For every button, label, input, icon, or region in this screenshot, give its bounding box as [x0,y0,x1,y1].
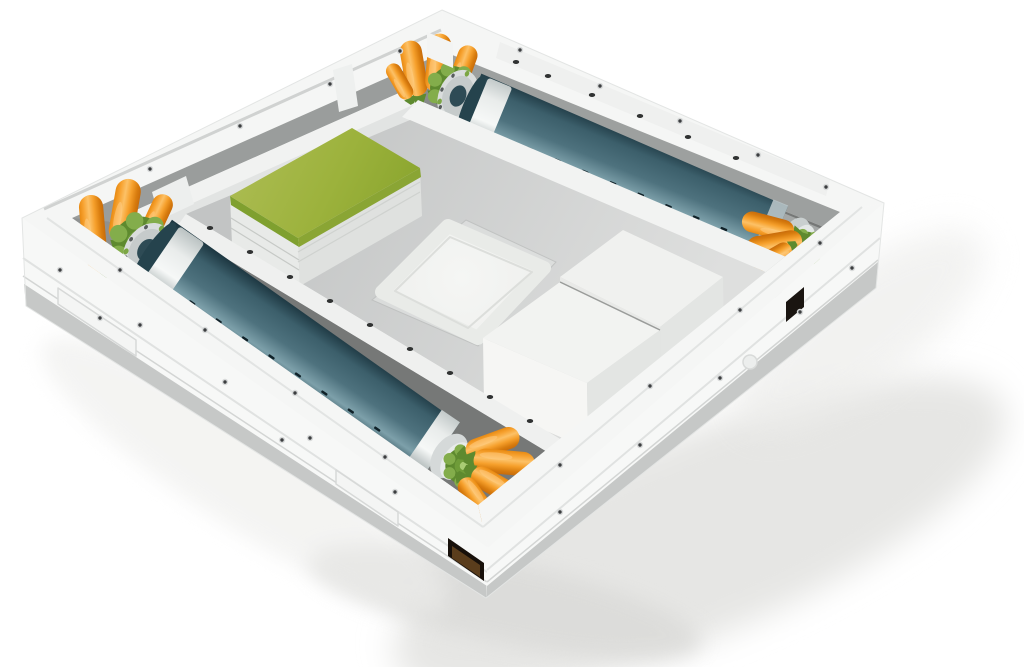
screw [737,307,743,313]
bar-hole [447,371,453,375]
bar-hole [527,419,533,423]
bar-hole [487,395,493,399]
screw [392,489,398,495]
screw [597,83,603,89]
bar-hole [367,323,373,327]
screw [637,442,643,448]
screw [202,327,208,333]
screw [279,437,285,443]
mount-hole [733,156,739,160]
screw [137,322,143,328]
bar-hole [327,299,333,303]
mount-hole [637,114,643,118]
screw [382,454,388,460]
screw [237,123,243,129]
screw [755,152,761,158]
screw [797,309,803,315]
screw [327,81,333,87]
screw [97,315,103,321]
screw [397,48,403,54]
screw [817,240,823,246]
screw [647,383,653,389]
product-render [0,0,1024,667]
screw [147,166,153,172]
mount-hole [589,93,595,97]
screw [222,379,228,385]
screw [677,118,683,124]
bar-hole [407,347,413,351]
render-stage [0,0,1024,667]
screw [557,462,563,468]
screw [823,184,829,190]
screw [117,267,123,273]
screw [717,375,723,381]
mount-hole [685,135,691,139]
mount-hole [545,74,551,78]
screw [307,435,313,441]
bar-hole [247,250,253,254]
bar-hole [207,226,213,230]
screw [849,265,855,271]
bar-hole [287,275,293,279]
screw [57,267,63,273]
screw [292,390,298,396]
screw [517,47,523,53]
screw [557,509,563,515]
round-recess [743,355,757,369]
mount-hole [513,60,519,64]
